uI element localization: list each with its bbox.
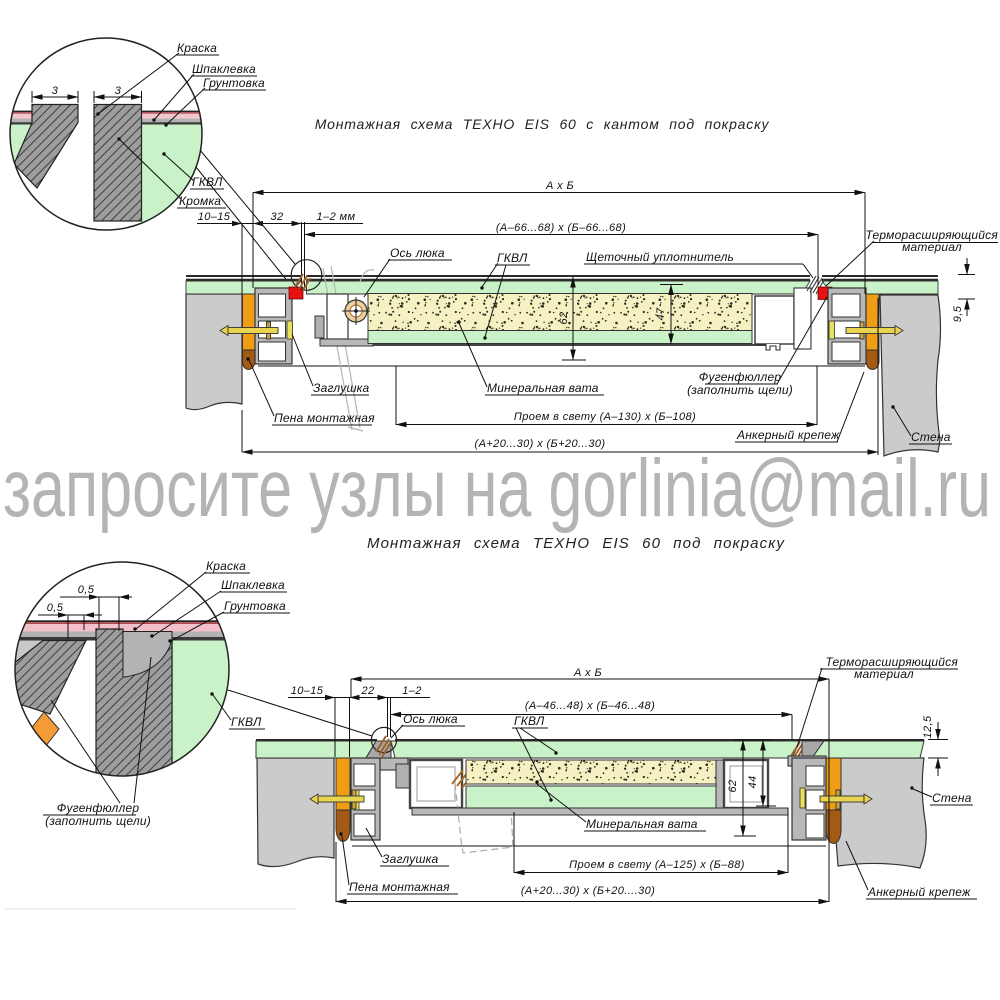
svg-text:Щеточный уплотнитель: Щеточный уплотнитель	[586, 250, 734, 264]
svg-text:Проем в свету (А–125) х (: Проем в свету (А–125) х (Б–88)	[569, 859, 745, 871]
svg-text:12,5: 12,5	[922, 715, 934, 738]
svg-text:1–2 мм: 1–2 мм	[317, 211, 356, 223]
svg-text:10–15: 10–15	[291, 685, 324, 697]
svg-text:Краска: Краска	[206, 559, 246, 573]
svg-text:Фугенфюллер: Фугенфюллер	[57, 801, 140, 815]
svg-text:62: 62	[727, 779, 739, 792]
svg-text:9,5: 9,5	[952, 305, 964, 322]
svg-text:Заглушка: Заглушка	[313, 381, 369, 395]
svg-text:ГКВЛ: ГКВЛ	[231, 715, 262, 729]
svg-text:Проем в свету (А–130) х (: Проем в свету (А–130) х (Б–108)	[514, 411, 696, 423]
svg-text:Краска: Краска	[177, 41, 217, 55]
svg-text:47: 47	[655, 307, 667, 321]
svg-text:Ось люка: Ось люка	[390, 246, 445, 260]
svg-text:(А+20...30) х (Б+20....30): (А+20...30) х (Б+20....30)	[521, 885, 655, 897]
svg-text:0,5: 0,5	[78, 584, 95, 596]
svg-text:(заполнить щели): (заполнить щели)	[687, 383, 793, 397]
svg-text:32: 32	[270, 211, 283, 223]
svg-text:10–15: 10–15	[198, 211, 231, 223]
svg-text:ГКВЛ: ГКВЛ	[497, 251, 528, 265]
svg-text:А х Б: А х Б	[573, 667, 602, 679]
svg-text:22: 22	[360, 685, 374, 697]
svg-text:Стена: Стена	[911, 430, 951, 444]
svg-text:62: 62	[558, 311, 570, 324]
svg-text:Фугенфюллер: Фугенфюллер	[699, 370, 782, 384]
svg-text:Анкерный крепеж: Анкерный крепеж	[736, 428, 840, 442]
svg-text:(А+20...30) х (Б+20...30): (А+20...30) х (Б+20...30)	[475, 438, 606, 450]
svg-text:3: 3	[52, 85, 59, 97]
svg-text:Анкерный крепеж: Анкерный крепеж	[867, 885, 971, 899]
svg-text:Пена монтажная: Пена монтажная	[274, 411, 375, 425]
svg-text:А х Б: А х Б	[545, 180, 574, 192]
svg-text:0,5: 0,5	[47, 602, 64, 614]
svg-text:материал: материал	[854, 667, 914, 681]
svg-text:Шпаклевка: Шпаклевка	[221, 578, 285, 592]
svg-text:Грунтовка: Грунтовка	[224, 599, 286, 613]
svg-text:Минеральная вата: Минеральная вата	[487, 381, 599, 395]
svg-text:(А–46...48) х (Б–46...48): (А–46...48) х (Б–46...48)	[525, 700, 655, 712]
svg-text:Минеральная вата: Минеральная вата	[586, 817, 698, 831]
svg-text:(заполнить щели): (заполнить щели)	[45, 814, 151, 828]
svg-text:Пена монтажная: Пена монтажная	[349, 880, 450, 894]
svg-text:Шпаклевка: Шпаклевка	[192, 62, 256, 76]
svg-text:44: 44	[747, 775, 759, 788]
svg-text:Стена: Стена	[932, 791, 972, 805]
svg-text:(А–66...68) х (Б–66...68): (А–66...68) х (Б–66...68)	[496, 222, 626, 234]
svg-text:запросите узлы на gorlinia@mai: запросите узлы на gorlinia@mail.ru	[3, 443, 991, 534]
svg-text:1–2: 1–2	[402, 685, 422, 697]
svg-text:материал: материал	[902, 240, 962, 254]
svg-text:Монтажная схема ТЕХНО EIS 60 п: Монтажная схема ТЕХНО EIS 60 под покраск…	[367, 535, 785, 552]
svg-text:Кромка: Кромка	[179, 194, 221, 208]
svg-text:Грунтовка: Грунтовка	[203, 76, 265, 90]
svg-text:3: 3	[115, 85, 122, 97]
svg-text:ГКВЛ: ГКВЛ	[514, 714, 545, 728]
svg-text:Ось люка: Ось люка	[403, 712, 458, 726]
svg-text:Заглушка: Заглушка	[382, 852, 438, 866]
svg-text:Монтажная схема ТЕХНО EIS 60 с: Монтажная схема ТЕХНО EIS 60 с кантом по…	[315, 116, 770, 132]
